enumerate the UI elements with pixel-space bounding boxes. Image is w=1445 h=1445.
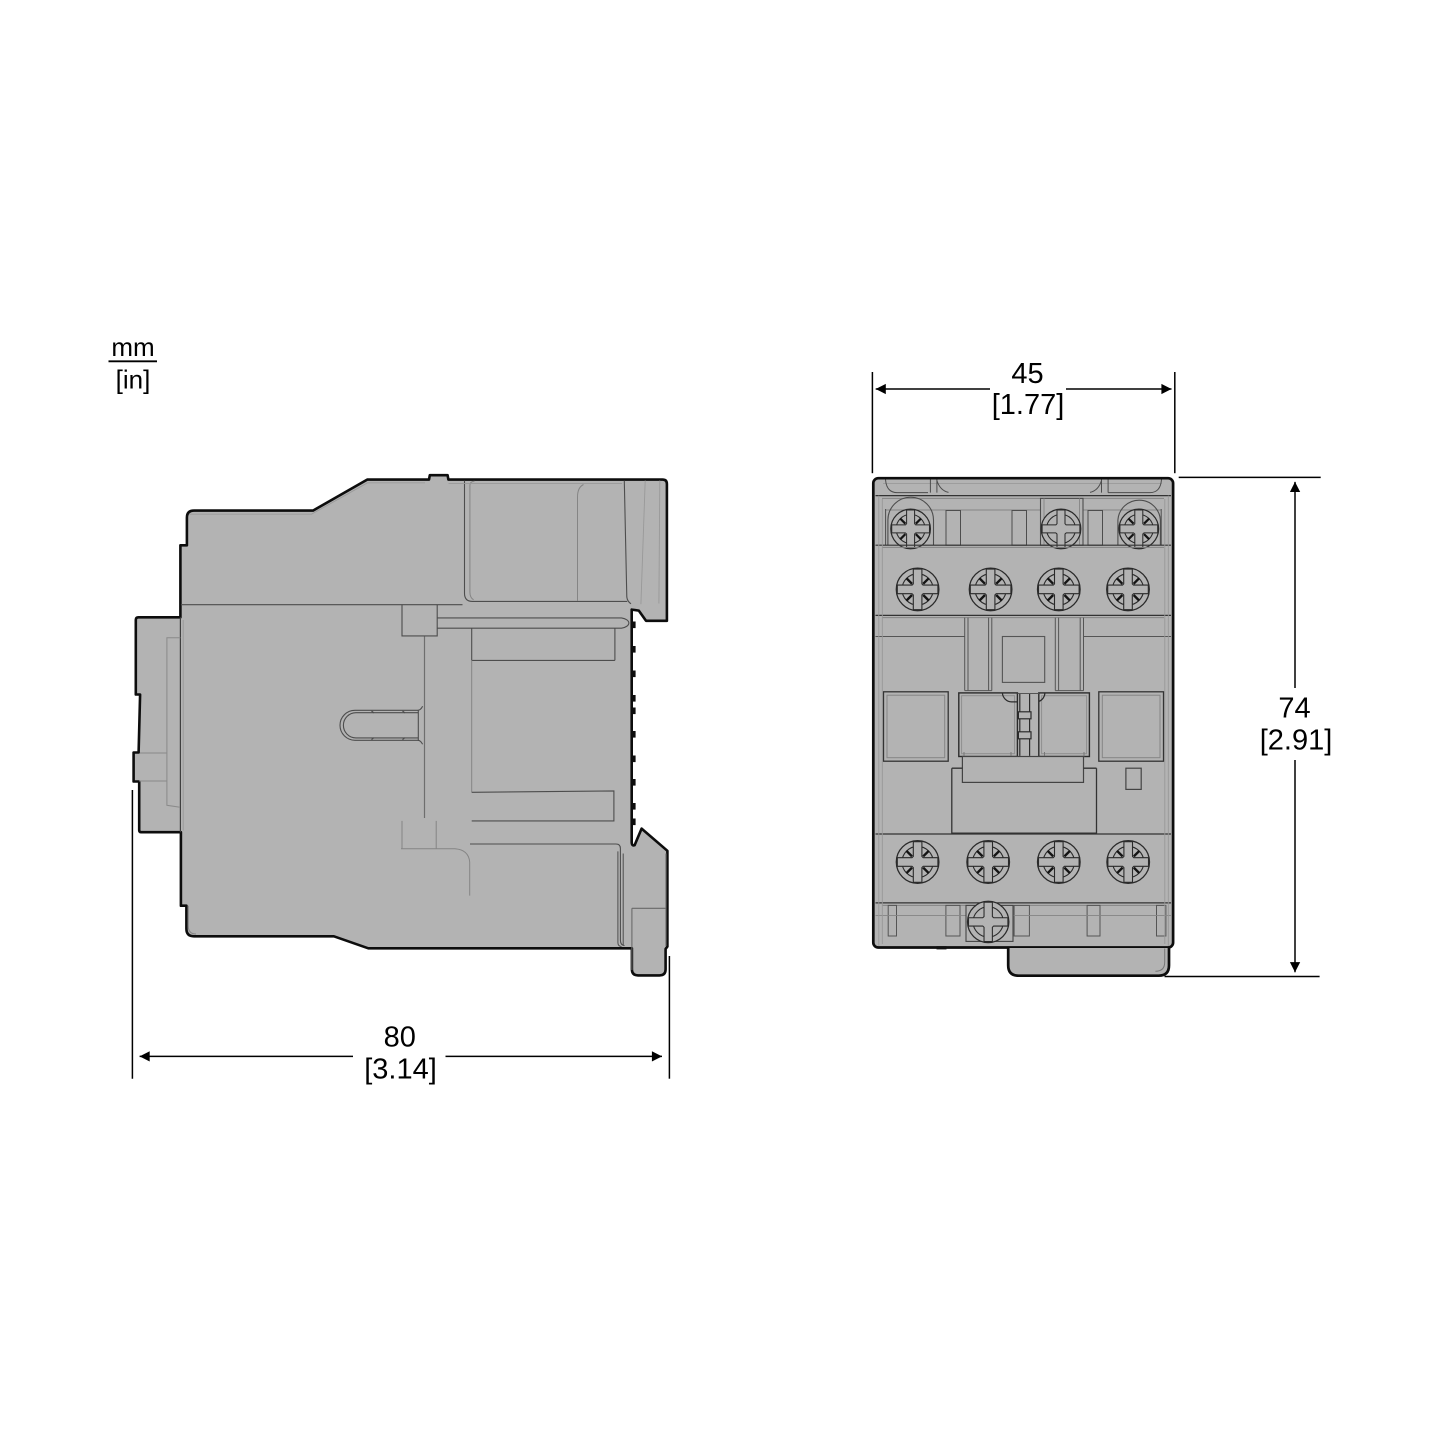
- svg-text:mm: mm: [111, 332, 154, 362]
- svg-text:45: 45: [1011, 358, 1043, 390]
- svg-text:[1.77]: [1.77]: [992, 389, 1065, 421]
- svg-text:[3.14]: [3.14]: [364, 1054, 437, 1086]
- svg-text:[2.91]: [2.91]: [1260, 725, 1333, 757]
- svg-text:[in]: [in]: [116, 365, 151, 395]
- svg-text:80: 80: [384, 1022, 416, 1054]
- svg-text:74: 74: [1278, 693, 1310, 725]
